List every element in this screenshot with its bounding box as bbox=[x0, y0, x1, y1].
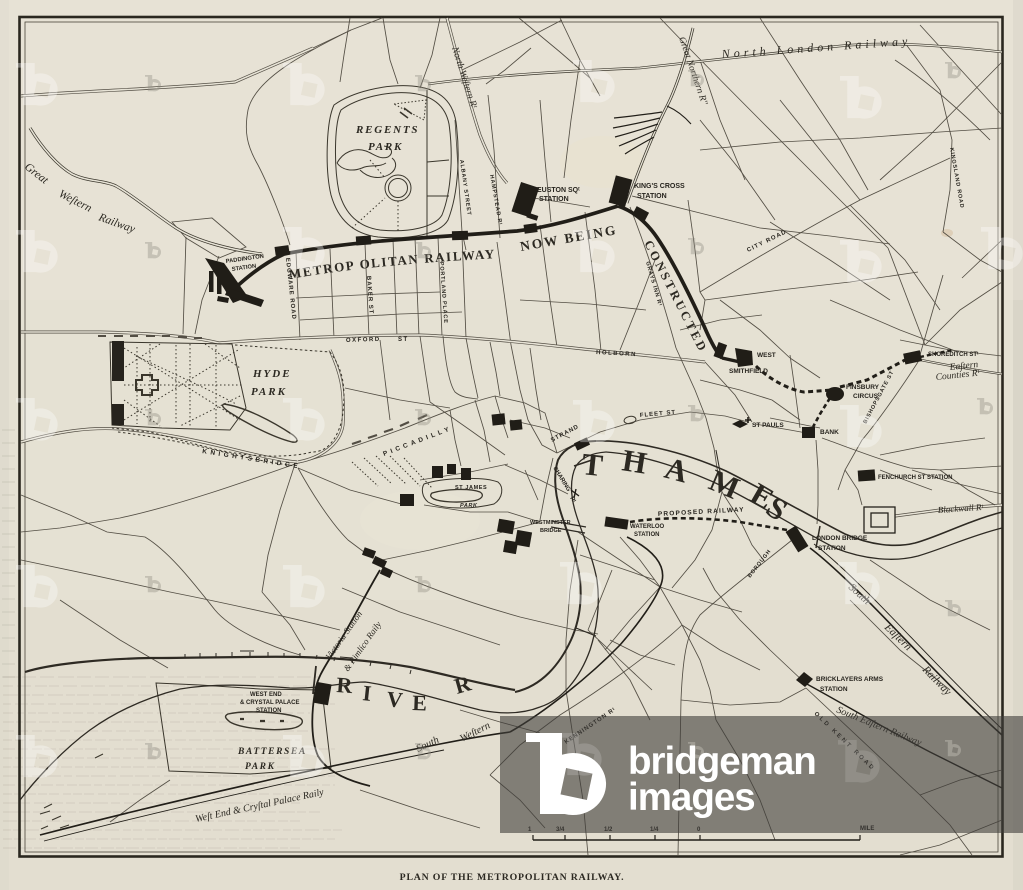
svg-text:PARK: PARK bbox=[245, 762, 276, 772]
svg-text:SHOREDITCH STᵗ: SHOREDITCH STᵗ bbox=[928, 351, 979, 358]
svg-text:STATION: STATION bbox=[539, 196, 569, 203]
svg-text:STATION: STATION bbox=[818, 545, 846, 552]
svg-text:STATION: STATION bbox=[256, 708, 281, 714]
svg-text:R: R bbox=[336, 672, 355, 698]
svg-text:E: E bbox=[412, 690, 428, 715]
svg-text:BRICKLAYERS ARMS: BRICKLAYERS ARMS bbox=[816, 676, 884, 683]
svg-text:ST: ST bbox=[398, 337, 409, 343]
svg-text:ST PAULS: ST PAULS bbox=[752, 422, 784, 429]
svg-text:SMITHFIELD: SMITHFIELD bbox=[729, 368, 768, 375]
svg-text:LONDON BRIDGE: LONDON BRIDGE bbox=[812, 535, 868, 542]
svg-text:FENCHURCH ST STATION: FENCHURCH ST STATION bbox=[878, 475, 952, 481]
svg-text:REGENTS: REGENTS bbox=[355, 124, 419, 136]
svg-text:WEST END: WEST END bbox=[250, 692, 282, 698]
svg-text:V: V bbox=[385, 686, 404, 713]
svg-text:WESTMINSTER: WESTMINSTER bbox=[530, 520, 571, 526]
svg-text:PARK: PARK bbox=[460, 503, 478, 509]
svg-text:EUSTON SQᵗ: EUSTON SQᵗ bbox=[537, 187, 580, 194]
svg-text:PLAN OF THE METROPOLITAN RAILW: PLAN OF THE METROPOLITAN RAILWAY. bbox=[400, 872, 625, 883]
svg-text:BRIDGE: BRIDGE bbox=[540, 528, 562, 534]
svg-text:WEST: WEST bbox=[757, 352, 776, 359]
svg-text:OXFORD: OXFORD bbox=[346, 337, 381, 344]
svg-text:STATION: STATION bbox=[820, 686, 848, 693]
svg-text:ST JAMES: ST JAMES bbox=[455, 485, 487, 491]
svg-text:HYDE: HYDE bbox=[252, 368, 292, 380]
svg-text:T: T bbox=[580, 446, 605, 483]
svg-text:FINSBURY: FINSBURY bbox=[846, 384, 880, 391]
svg-text:PARK: PARK bbox=[251, 386, 287, 398]
svg-text:KING'S CROSS: KING'S CROSS bbox=[634, 183, 685, 190]
svg-text:BANK: BANK bbox=[820, 429, 839, 436]
svg-text:PARK: PARK bbox=[368, 141, 403, 153]
svg-text:STATION: STATION bbox=[637, 193, 667, 200]
svg-text:STATION: STATION bbox=[634, 532, 659, 538]
svg-text:WATERLOO: WATERLOO bbox=[630, 524, 665, 530]
svg-text:images: images bbox=[628, 776, 755, 819]
svg-text:& CRYSTAL PALACE: & CRYSTAL PALACE bbox=[240, 700, 299, 706]
